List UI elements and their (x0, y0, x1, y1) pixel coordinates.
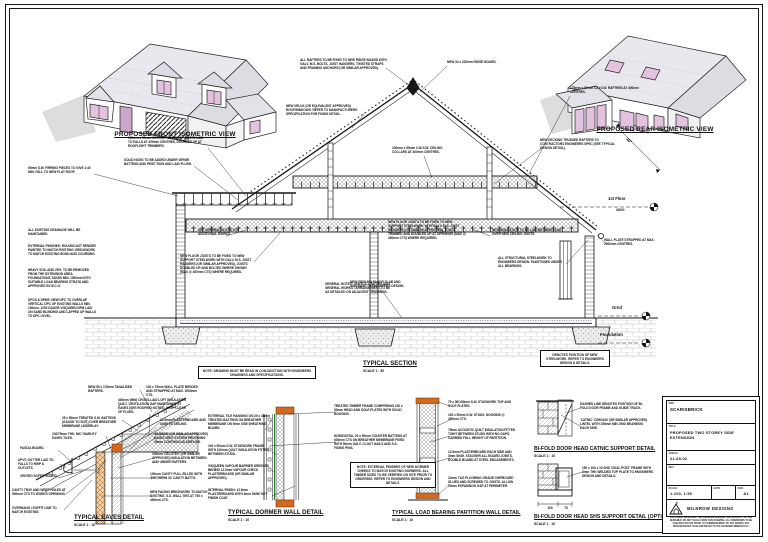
annotation-note: VENTED SOFFIT BOARD. (20, 474, 58, 478)
annotation-note: CAVITY TRAY AND WEEP HOLES AT 900mm CTS … (12, 488, 68, 496)
level-first-floor-value: 2600 (616, 208, 624, 212)
annotation-note: TREATED TIMBER FRAME COMPRISING 100 x 50… (334, 404, 406, 416)
title-block-title-row: TITLE PROPOSED TWO STOREY SIDE EXTENSION (666, 423, 756, 451)
size-value: A1 (739, 491, 753, 496)
scale-value: 1:100, 1:50 (670, 491, 708, 496)
drawing-sheet: PROPOSED FRONT ISOMETRIC VIEW PROPOSED R… (0, 0, 768, 542)
annotation-note: OVERHANG / SOFFIT LINE TO MATCH EXISTING… (12, 506, 68, 514)
drawing-canvas (0, 0, 768, 542)
catnic-detail-title: BI-FOLD DOOR HEAD CATNIC SUPPORT DETAIL (534, 446, 655, 452)
job-number-value: 21-69-02 (670, 456, 753, 461)
annotation-note: SOLID NOGS TO BE ADDED UNDER VERGE BATTE… (124, 158, 196, 166)
section-scale: SCALE 1 : 50 (363, 369, 384, 373)
annotation-note: 12.5mm PLASTERBOARD EACH SIDE AND 3mm SK… (448, 450, 518, 462)
annotation-note: NEW INSULATION TO BE LAID BETWEEN AND OV… (492, 228, 564, 236)
annotation-note: 100/75mm THK. M/C 'MARLEY' EAVES TILES. (52, 432, 106, 440)
annotation-note: 150 x 100 x 10 SHS 'GOAL POST' FRAME WIT… (582, 466, 656, 478)
eaves-detail-scale: SCALE 1 : 10 (74, 523, 95, 527)
annotation-note: HEAVY SOIL AND VEG. TO BE REMOVED FROM T… (28, 268, 96, 288)
company-logo (669, 502, 684, 515)
annotation-note: 'KLOBER' (OR SIMILAR APPROVED) EAVES VEN… (154, 432, 210, 444)
size-label: SIZE (738, 487, 744, 490)
annotation-note: DASHED LINE DENOTES POSITION OF BI-FOLD … (580, 402, 646, 410)
annotation-note: NEW VELUX (OR EQUIVALENT APPROVED) ROOFW… (286, 104, 368, 116)
annotation-note: 100 x 50mm S.W. STUDWORK FRAME WITH 100m… (208, 444, 270, 456)
rev-label: REV (669, 466, 674, 469)
annotation-note: NEW FLOOR JOISTS TO BE FIXED TO NEW SUPP… (180, 254, 254, 274)
shs-dim-b: 75 (560, 506, 572, 510)
note-box-steel: DENOTES POSITION OF NEW STEELWORK. REFER… (540, 350, 610, 367)
dormer-detail-title: TYPICAL DORMER WALL DETAIL (228, 510, 323, 516)
annotation-note: 100mm 'CELOTEX' (OR SIMILAR APPROVED) IN… (152, 452, 208, 464)
dormer-detail-scale: SCALE 1 : 10 (228, 518, 249, 522)
catnic-detail-drawing (536, 400, 574, 436)
rear-iso-label: PROPOSED REAR ISOMETRIC VIEW (570, 126, 740, 133)
partition-detail-scale: SCALE 1 : 10 (392, 518, 413, 522)
annotation-note: ALL EXISTING DRAINAGE WILL BE MAINTAINED… (28, 228, 96, 236)
annotation-note: 175mm x 50mm C24 S.W. RAFTERS AT 400mm C… (570, 86, 642, 94)
site-value: SCARISBRICK (670, 407, 753, 412)
company-name: MILNROW DESIGNS (687, 506, 733, 511)
shs-dim-a: 100 (543, 506, 557, 510)
partition-detail-title: TYPICAL LOAD BEARING PARTITION WALL DETA… (392, 510, 520, 516)
date-cell: DATE (711, 486, 736, 499)
annotation-note: 400mm (MIN) CROSS-LAID LOFT INSULATION Q… (118, 398, 190, 414)
annotation-note: UPVC GUTTER LAID TO FALLS TO RWP & OUTLE… (18, 458, 60, 470)
size-cell: SIZE A1 (735, 486, 755, 499)
title-block-site-row: SITE SCARISBRICK (666, 400, 756, 424)
annotation-note: NEW 50 x 175mm TANALISED RAFTERS. (88, 385, 140, 393)
annotation-note: NEW DECKING TRUSSED RAFTERS TO CONTRACTO… (540, 138, 618, 150)
drawing-title-label: TITLE (669, 425, 676, 428)
annotation-note: ALL RAFTERS TO BE FIXED TO NEW RIDGE BOA… (300, 58, 388, 70)
annotation-note: NEW FLOOR JOISTS TO BE FIXED TO NEW SUPP… (388, 220, 468, 240)
annotation-note: 150mm x 50mm C24 S.W. FLAT ROOF JOISTS L… (128, 136, 208, 148)
annotation-note: 12.5mm PLASTERBOARD AND SKIM TO CEILING. (160, 418, 208, 426)
annotation-note: EXTERNAL FINISHES: ROUGHCAST RENDER PAIN… (28, 244, 96, 256)
title-block-rev-row: REV (666, 464, 756, 486)
annotation-note: 100 x 75mm WALL PLATE BEDDED AND STRAPPE… (146, 385, 200, 397)
eaves-detail-title: TYPICAL EAVES DETAIL (74, 515, 144, 521)
annotation-note: FASCIA BOARD. (20, 446, 58, 450)
annotation-note: 75 x 50/100mm S.W. STUDWORK TOP AND SOLE… (448, 400, 514, 408)
annotation-note: INTERNAL FINISH: 12.5mm PLASTERBOARD WIT… (208, 488, 270, 500)
annotation-note: 50mm S.W. FIRRING PIECES TO GIVE 1:40 MI… (28, 166, 94, 174)
annotation-note: NEW FACING BRICKWORK TO MATCH EXISTING. … (150, 490, 210, 502)
annotation-note: HORIZONTAL 25 x 50mm COUNTER BATTENS AT … (334, 434, 408, 450)
site-label: SITE (669, 402, 675, 405)
annotation-note: 100 x 50mm S.W. STUDS, NOGGINS @ 450mm C… (448, 413, 514, 421)
job-number-label: JOB No (669, 452, 679, 455)
shs-detail-scale: SCALE 1 : 10 (534, 522, 555, 526)
level-ground: Grnd (612, 305, 622, 310)
annotation-note: DPCS & DPMS: NEW DPC TO OVERLAP VERTICAL… (28, 298, 96, 318)
note-box-dormer: NOTE: EXTERNAL FINISHES OF NEW DORMER CH… (350, 462, 436, 488)
level-first-floor: 1st Floor (608, 196, 626, 201)
annotation-note: 25 x 50mm TREATED S.W. BATTENS (GAUGE TO… (62, 416, 122, 428)
annotation-note: 100mm x 50mm C16 S.W. CEILING COLLARS AT… (392, 146, 454, 154)
annotation-note: NEW GROUND FLOOR SLAB AND SUB-BASE TO EN… (350, 280, 408, 288)
annotation-note: ALL STRUCTURAL STEELWORK TO ENGINEERS DE… (498, 256, 568, 268)
catnic-detail-scale: SCALE 1 : 10 (534, 454, 555, 458)
annotation-note: WALL PLATE STRAPPED AT MAX. 2000mm CENTR… (604, 238, 656, 246)
annotation-note: SEE GENERAL NOTES FOR ADDITIONAL WORKS. (198, 228, 256, 236)
annotation-note: NEW 32 x 225mm RIDGE BOARD. (447, 60, 505, 64)
annotation-note: EXTERNAL TILE HANGING ON 25 x 38mm TREAT… (208, 414, 270, 430)
disclaimer-text: COPYRIGHT RESERVED. THIS DRAWING REMAINS… (667, 517, 755, 529)
company-row: MILNROW DESIGNS (666, 499, 756, 517)
annotation-note: 22mm T&G FLOORING GRADE CHIPBOARD GLUED … (448, 476, 518, 488)
annotation-note: 75mm ACOUSTIC QUILT INSULATION FITTED TI… (448, 428, 518, 440)
annotation-note: 100mm CAVITY FULL-FILLED WITH 'DRITHERM … (150, 472, 208, 480)
date-label: DATE (714, 487, 721, 490)
shs-detail-drawing (538, 464, 572, 507)
shs-detail-title: BI-FOLD DOOR HEAD SHS SUPPORT DETAIL (OP… (534, 514, 676, 520)
annotation-note: 'CATNIC' CG90/100 (OR SIMILAR APPROVED) … (580, 418, 650, 430)
scale-label: SCALE (669, 487, 678, 490)
note-box-main: NOTE: DRAWING MUST BE READ IN CONJUNCTIO… (198, 366, 316, 379)
title-block-job-row: JOB No 21-69-02 (666, 450, 756, 465)
drawing-title-value: PROPOSED TWO STOREY SIDE EXTENSION (670, 430, 753, 440)
title-block-bottom-row: SCALE 1:100, 1:50 DATE SIZE A1 (666, 485, 756, 500)
annotation-note: VISQUEEN VAPOUR BARRIER DRESSED BEHIND 1… (208, 464, 270, 480)
level-foundation: Foundation (600, 332, 623, 337)
section-title: TYPICAL SECTION (363, 361, 417, 367)
title-block: SITE SCARISBRICK TITLE PROPOSED TWO STOR… (662, 396, 760, 534)
